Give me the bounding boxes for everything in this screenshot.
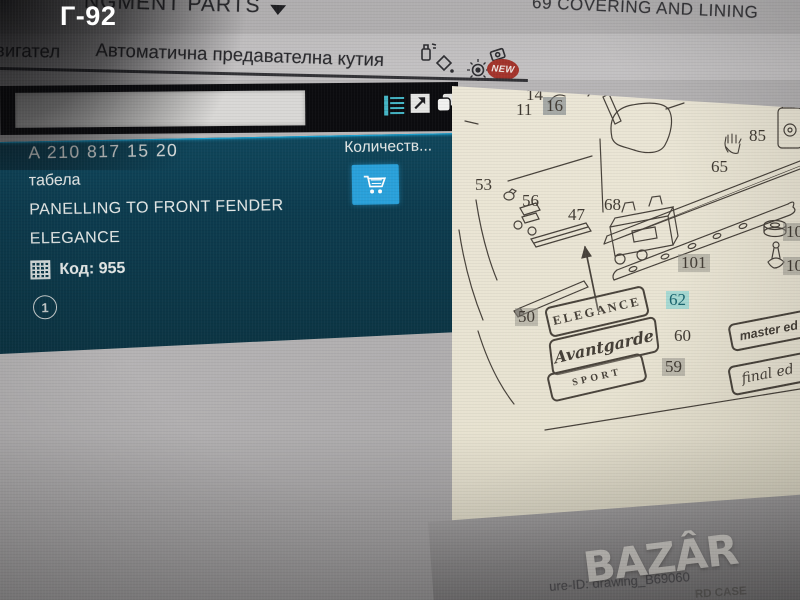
footnote-circle-1: 1 [33, 295, 57, 319]
diagram-callout[interactable]: 11 [513, 101, 535, 119]
diagram-callout[interactable]: 56 [519, 192, 542, 210]
header-bar [0, 82, 458, 135]
diagram-callout[interactable]: 10 [783, 223, 800, 241]
diagram-callout[interactable]: 68 [601, 196, 624, 214]
expand-icon[interactable] [410, 93, 430, 113]
screen-photo: NGMENT PARTS 69 COVERING AND LINING вига… [0, 0, 800, 600]
diagram-callout[interactable]: 60 [671, 327, 694, 345]
quantity-label: Количеств... [344, 137, 432, 157]
part-info-panel: A 210 817 15 20 табела PANELLING TO FRON… [0, 133, 459, 354]
list-view-icon[interactable] [384, 95, 405, 115]
diagram-callout[interactable]: 47 [565, 206, 588, 224]
diagram-callout[interactable]: 59 [662, 358, 685, 376]
diagram-callout[interactable]: 62 [666, 291, 689, 309]
diagram-callout[interactable]: 50 [515, 308, 538, 326]
overlay-label: Г-92 [60, 1, 116, 32]
part-name-en: PANELLING TO FRONT FENDER [29, 197, 283, 219]
diagram-callout-selected[interactable]: 16 [543, 97, 566, 115]
diagram-callout[interactable]: 10 [783, 257, 800, 275]
header-input-field[interactable] [15, 90, 305, 128]
part-number: A 210 817 15 20 [28, 140, 178, 164]
diagram-callout[interactable]: 101 [678, 254, 710, 272]
grid-icon [30, 260, 50, 279]
part-name-bg: табела [29, 172, 81, 191]
code-label: Код: 955 [59, 259, 125, 278]
paint-icon [422, 44, 436, 60]
part-trim: ELEGANCE [30, 229, 121, 249]
diagram-callout[interactable]: 85 [746, 127, 769, 145]
chevron-down-icon [270, 5, 286, 16]
parts-diagram: 14 11 16 53 56 47 68 65 85 50 101 62 60 … [452, 84, 800, 536]
diamond-icon [437, 56, 453, 72]
add-to-cart-button[interactable] [352, 164, 400, 205]
tab-engine[interactable]: вигател [0, 39, 60, 62]
diagram-callout[interactable]: 53 [472, 176, 495, 194]
cart-icon [361, 172, 389, 196]
diagram-callout[interactable]: 65 [708, 158, 731, 176]
hand-icon [725, 134, 741, 153]
